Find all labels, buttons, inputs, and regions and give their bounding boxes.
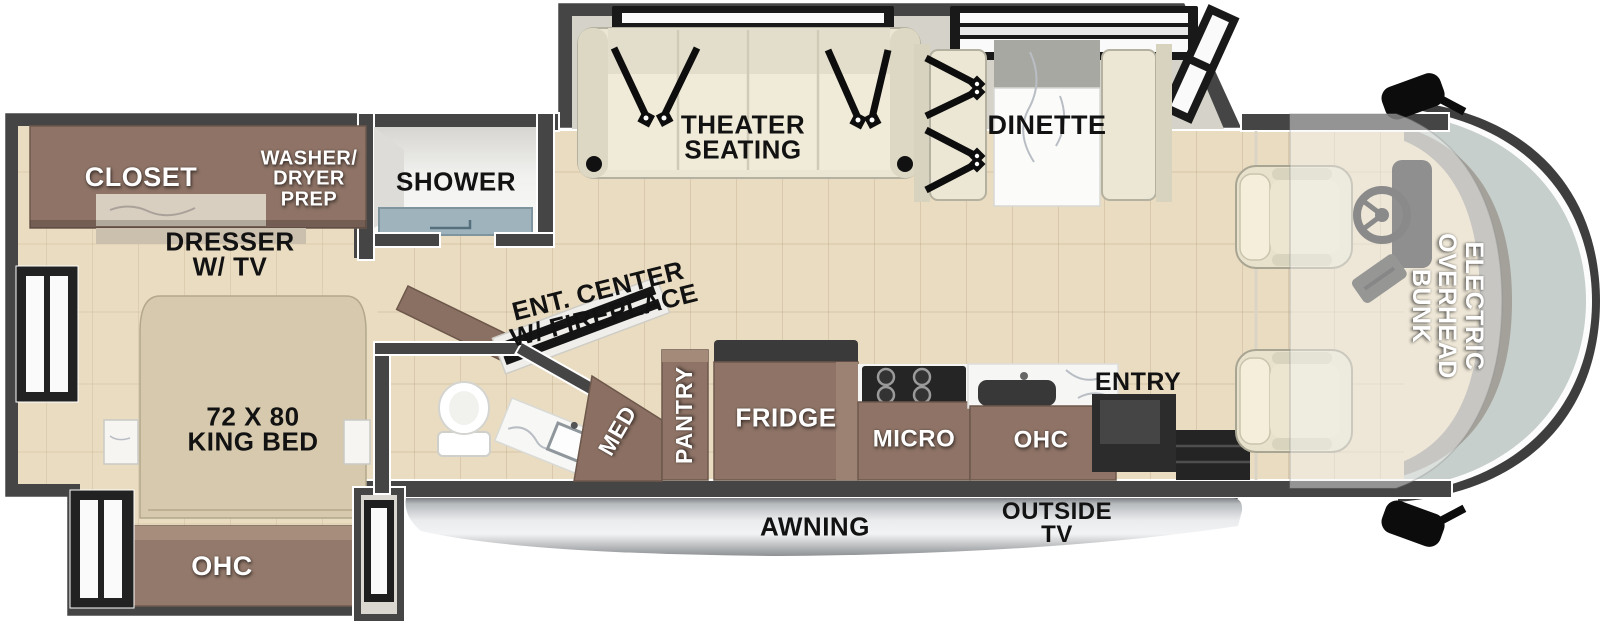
window-icon (364, 500, 394, 602)
label-bedroom-ohc: OHC (191, 554, 253, 580)
rear-annex (353, 487, 405, 622)
label-king-bed: 72 X 80 KING BED (187, 404, 318, 453)
nightstand (104, 420, 138, 464)
label-shower: SHOWER (396, 170, 516, 195)
label-electric-overhead-bunk: ELECTRIC OVERHEAD BUNK (1407, 233, 1487, 379)
window-icon (16, 266, 78, 402)
window-icon (70, 490, 134, 608)
dinette-bench-right (1102, 50, 1156, 200)
label-closet: CLOSET (85, 165, 198, 191)
label-micro: MICRO (873, 429, 956, 452)
label-washer-dryer-prep: WASHER/ DRYER PREP (261, 148, 358, 209)
label-outside-tv: OUTSIDE TV (1002, 501, 1112, 547)
label-entry: ENTRY (1095, 371, 1181, 395)
rv-floorplan: CLOSET WASHER/ DRYER PREP DRESSER W/ TV … (0, 0, 1600, 629)
label-pantry: PANTRY (674, 366, 696, 464)
dinette-bench-right (1156, 44, 1172, 202)
label-awning: AWNING (760, 515, 870, 540)
dinette-bench-left (914, 44, 930, 202)
toilet (438, 382, 490, 456)
nightstand (344, 420, 370, 464)
label-theater-seating: THEATER SEATING (681, 112, 805, 161)
label-kitchen-ohc: OHC (1014, 430, 1069, 453)
label-fridge: FRIDGE (735, 406, 836, 431)
sofa-leg-dot (586, 156, 602, 172)
sofa-leg-dot (897, 156, 913, 172)
entry-door (1092, 394, 1176, 472)
label-dinette: DINETTE (987, 113, 1106, 139)
cooktop (858, 364, 970, 406)
label-dresser-tv: DRESSER W/ TV (165, 229, 294, 278)
